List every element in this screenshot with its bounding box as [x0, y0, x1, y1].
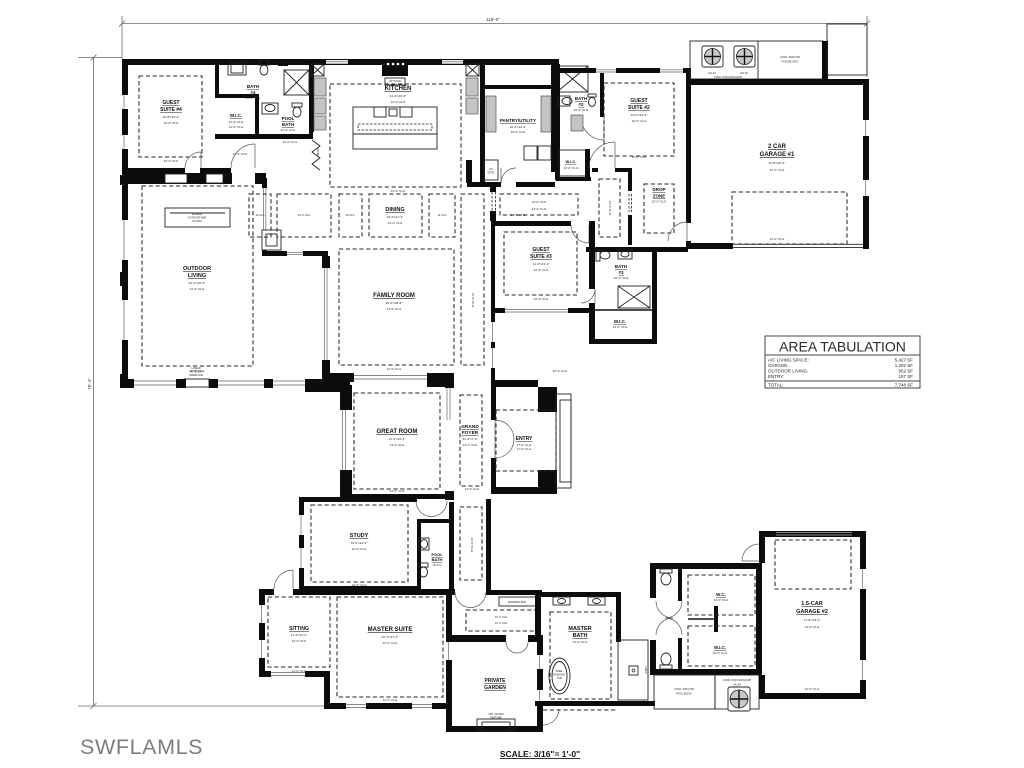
svg-text:7,748 SF: 7,748 SF	[895, 383, 914, 388]
svg-text:2 CAR: 2 CAR	[768, 144, 787, 150]
svg-text:CONC. PAD FOR: CONC. PAD FOR	[674, 688, 694, 691]
svg-text:24'-0"x11'-4": 24'-0"x11'-4"	[387, 215, 404, 219]
svg-text:21'-0"x16'-8": 21'-0"x16'-8"	[390, 94, 407, 98]
svg-text:POOL: POOL	[282, 116, 295, 121]
svg-text:14'-0"x13'-4": 14'-0"x13'-4"	[533, 262, 550, 266]
svg-text:12'-0" CLG: 12'-0" CLG	[292, 669, 307, 673]
svg-text:CONC. PAD FOR EQUIP: CONC. PAD FOR EQUIP	[714, 76, 742, 79]
svg-text:10'-0" CLG: 10'-0" CLG	[534, 297, 549, 301]
svg-text:GARDEN: GARDEN	[484, 685, 506, 691]
svg-text:14'-0" CLG: 14'-0" CLG	[390, 443, 405, 447]
svg-text:32'-0" CLG: 32'-0" CLG	[190, 369, 205, 373]
svg-text:10'-4"x14'-4": 10'-4"x14'-4"	[510, 125, 527, 129]
svg-text:LINEN: LINEN	[644, 666, 647, 674]
svg-text:10'-0" CLG: 10'-0" CLG	[614, 276, 629, 280]
svg-text:A/C #1: A/C #1	[708, 72, 716, 75]
svg-text:12'-0" CLG: 12'-0" CLG	[164, 121, 179, 125]
svg-text:POOL EQUIP.: POOL EQUIP.	[676, 693, 692, 696]
svg-text:21'-4"x7'-0": 21'-4"x7'-0"	[462, 437, 477, 441]
svg-text:A/C LIVING SPACE:: A/C LIVING SPACE:	[768, 358, 809, 363]
svg-text:12' CLG: 12' CLG	[345, 214, 354, 217]
svg-text:952 SF: 952 SF	[898, 369, 913, 374]
svg-text:1.5-CAR: 1.5-CAR	[801, 601, 822, 607]
svg-text:12'-0" CLG: 12'-0" CLG	[246, 96, 261, 100]
svg-text:12'-0" CLG: 12'-0" CLG	[352, 583, 367, 587]
svg-text:12'-0" CLG: 12'-0" CLG	[573, 701, 588, 705]
svg-text:167 SF: 167 SF	[898, 374, 913, 379]
svg-text:W/ SINK: W/ SINK	[192, 220, 202, 223]
svg-text:TOTAL:: TOTAL:	[768, 383, 783, 388]
svg-text:FIREPLACE: FIREPLACE	[189, 374, 203, 377]
svg-text:12'-0" CLG: 12'-0" CLG	[190, 287, 205, 291]
svg-text:#4: #4	[250, 90, 256, 95]
svg-text:12' CLG: 12' CLG	[437, 214, 446, 217]
svg-text:FOYER: FOYER	[316, 148, 319, 157]
svg-text:10'-0" CLG: 10'-0" CLG	[613, 325, 628, 329]
svg-text:10'-0" CLG: 10'-0" CLG	[632, 155, 647, 159]
svg-text:12'-0" CLG: 12'-0" CLG	[390, 489, 405, 493]
svg-text:BATH: BATH	[247, 84, 259, 89]
svg-text:ENTRY:: ENTRY:	[768, 374, 784, 379]
svg-text:76'-4": 76'-4"	[87, 378, 92, 390]
svg-text:14'-0" CLG: 14'-0" CLG	[463, 443, 478, 447]
svg-text:32'-0" CLG: 32'-0" CLG	[164, 159, 179, 163]
svg-text:BATH: BATH	[282, 122, 294, 127]
svg-text:12'-0" CLG: 12'-0" CLG	[608, 201, 612, 216]
svg-text:12'-0" CLG: 12'-0" CLG	[233, 152, 248, 156]
svg-text:BATH: BATH	[432, 557, 443, 562]
svg-text:SITTING: SITTING	[289, 626, 309, 632]
svg-text:12'-0" CLG: 12'-0" CLG	[471, 293, 475, 308]
svg-text:GARAGE #1: GARAGE #1	[760, 152, 795, 158]
svg-text:SUITE #2: SUITE #2	[628, 105, 650, 111]
svg-text:#2: #2	[578, 102, 584, 107]
svg-text:W.I.C.: W.I.C.	[566, 159, 577, 164]
svg-text:10'-0" CLG: 10'-0" CLG	[511, 130, 526, 134]
svg-text:12'-0" CLG: 12'-0" CLG	[229, 125, 244, 129]
svg-text:GREAT ROOM: GREAT ROOM	[377, 429, 418, 435]
svg-text:14'-0"x14'-4": 14'-0"x14'-4"	[631, 113, 648, 117]
svg-text:12'-0" CLG: 12'-0" CLG	[383, 698, 398, 702]
svg-text:W.C.: W.C.	[716, 592, 726, 597]
svg-text:12'-0" CLG: 12'-0" CLG	[805, 625, 820, 629]
svg-text:LIVING: LIVING	[188, 273, 206, 279]
svg-text:13'-0" CLG: 13'-0" CLG	[388, 221, 403, 225]
svg-text:17'-8"x23'-4": 17'-8"x23'-4"	[804, 618, 821, 622]
svg-text:17'-0" CLG: 17'-0" CLG	[517, 447, 532, 451]
svg-text:DINING: DINING	[385, 207, 404, 213]
svg-text:#3: #3	[618, 270, 624, 275]
svg-text:W.I.C.: W.I.C.	[230, 113, 242, 118]
svg-text:12'-0" CLG: 12'-0" CLG	[283, 140, 298, 144]
svg-text:SWFLAMLS: SWFLAMLS	[80, 735, 203, 759]
svg-text:10'-0" CLG: 10'-0" CLG	[564, 166, 579, 170]
svg-text:11'-4"x11'-4": 11'-4"x11'-4"	[291, 633, 307, 637]
svg-text:16'-0"x14'-0": 16'-0"x14'-0"	[351, 541, 368, 545]
svg-text:34'-4"x32'-4": 34'-4"x32'-4"	[189, 281, 206, 285]
svg-text:KITCHEN: KITCHEN	[385, 86, 412, 92]
svg-text:SUITE #3: SUITE #3	[530, 254, 552, 260]
svg-text:GUEST: GUEST	[630, 98, 647, 104]
svg-text:14'-0" CLG: 14'-0" CLG	[532, 207, 547, 211]
svg-text:BATH: BATH	[573, 633, 588, 639]
svg-text:SCALE: 3/16"= 1'-0": SCALE: 3/16"= 1'-0"	[500, 749, 580, 759]
svg-text:DROP: DROP	[652, 187, 665, 192]
svg-text:36" HOOD: 36" HOOD	[389, 80, 401, 83]
svg-text:10'-0" CLG: 10'-0" CLG	[574, 108, 589, 112]
svg-text:1,202 SF: 1,202 SF	[895, 363, 914, 368]
svg-text:12'-0" CLG: 12'-0" CLG	[805, 687, 820, 691]
svg-text:FOYER: FOYER	[462, 430, 479, 436]
svg-text:MASTER: MASTER	[568, 626, 591, 632]
svg-text:13'-0" CLG: 13'-0" CLG	[387, 307, 402, 311]
svg-text:AREA TABULATION: AREA TABULATION	[779, 339, 906, 355]
svg-text:A/C #2: A/C #2	[740, 72, 748, 75]
svg-text:OUTDOOR: OUTDOOR	[183, 266, 211, 272]
svg-text:20'-4"x18'-8": 20'-4"x18'-8"	[386, 301, 403, 305]
svg-text:GUEST: GUEST	[532, 247, 549, 253]
svg-text:14'-0" CLG: 14'-0" CLG	[511, 213, 526, 217]
svg-text:MASTER SUITE: MASTER SUITE	[368, 627, 413, 633]
svg-text:12'-0" CLG: 12'-0" CLG	[298, 214, 310, 217]
svg-text:5,427 SF: 5,427 SF	[895, 358, 914, 363]
svg-text:21'-4"x21'-4": 21'-4"x21'-4"	[389, 437, 406, 441]
svg-text:10'-0" CLG: 10'-0" CLG	[632, 119, 647, 123]
svg-text:12'-0" CLG: 12'-0" CLG	[229, 120, 244, 124]
svg-text:PRIVATE: PRIVATE	[485, 678, 507, 684]
svg-text:STUDY: STUDY	[350, 533, 369, 539]
svg-text:10'-0" CLG: 10'-0" CLG	[495, 622, 507, 625]
svg-text:12'-0" CLG: 12'-0" CLG	[383, 641, 398, 645]
svg-text:W.I.C.: W.I.C.	[614, 319, 626, 324]
svg-text:FAMILY ROOM: FAMILY ROOM	[373, 293, 415, 299]
svg-text:20'-4"x17'-4": 20'-4"x17'-4"	[382, 635, 399, 639]
svg-text:12'-0" CLG: 12'-0" CLG	[495, 616, 507, 619]
svg-text:CONC. PAD FOR: CONC. PAD FOR	[780, 56, 800, 59]
svg-text:MORNING BAR: MORNING BAR	[508, 601, 526, 604]
svg-text:PANTRY/UTILITY: PANTRY/UTILITY	[500, 118, 536, 123]
svg-text:10'-0" CLG: 10'-0" CLG	[714, 598, 729, 602]
svg-text:10'-0" CLG: 10'-0" CLG	[713, 651, 728, 655]
svg-text:A/C #3: A/C #3	[733, 684, 741, 687]
svg-text:12'-0" CLG: 12'-0" CLG	[470, 538, 474, 553]
svg-text:FUTURE GEN.: FUTURE GEN.	[782, 61, 799, 64]
svg-text:12'-0" CLG: 12'-0" CLG	[391, 189, 406, 193]
svg-text:W.I.C.: W.I.C.	[714, 645, 726, 650]
svg-text:GUEST: GUEST	[162, 100, 179, 106]
svg-text:GARAGE #2: GARAGE #2	[796, 609, 828, 615]
svg-text:10' CLG: 10' CLG	[432, 564, 441, 567]
svg-text:12' CLG: 12' CLG	[255, 214, 264, 217]
svg-text:16'-8"x14'-4": 16'-8"x14'-4"	[163, 115, 180, 119]
svg-text:TUB: TUB	[557, 677, 562, 680]
svg-text:12'-0" CLG: 12'-0" CLG	[532, 200, 547, 204]
svg-text:12'-0" CLG: 12'-0" CLG	[770, 237, 785, 241]
svg-text:12'-0" CLG: 12'-0" CLG	[292, 639, 307, 643]
svg-text:OUTDOOR LIVING:: OUTDOOR LIVING:	[768, 369, 808, 374]
svg-text:ZONE: ZONE	[653, 194, 666, 199]
svg-text:CONC. PAD FOR EQUIP: CONC. PAD FOR EQUIP	[723, 679, 751, 682]
svg-text:12'-0" CLG: 12'-0" CLG	[387, 367, 402, 371]
svg-text:24'-8"x23'-4": 24'-8"x23'-4"	[769, 161, 786, 165]
svg-text:12'-0" CLG: 12'-0" CLG	[770, 168, 785, 172]
svg-text:GRAND: GRAND	[461, 424, 479, 430]
svg-text:10'-0" CLG: 10'-0" CLG	[534, 268, 549, 272]
svg-text:12'-0" CLG: 12'-0" CLG	[573, 640, 588, 644]
svg-text:ENTRY: ENTRY	[516, 436, 533, 442]
svg-text:12'-0" CLG: 12'-0" CLG	[553, 369, 568, 373]
svg-text:10'-0" CLG: 10'-0" CLG	[652, 200, 667, 204]
svg-text:BATH: BATH	[615, 264, 627, 269]
svg-text:118'-0": 118'-0"	[486, 17, 500, 22]
svg-text:12'-0" CLG: 12'-0" CLG	[352, 547, 367, 551]
svg-text:GARAGE:: GARAGE:	[768, 363, 789, 368]
svg-text:BATH: BATH	[575, 96, 587, 101]
svg-text:SUITE #4: SUITE #4	[160, 107, 182, 113]
svg-text:STOR.: STOR.	[487, 172, 495, 175]
svg-text:12'-0" CLG: 12'-0" CLG	[391, 100, 406, 104]
svg-text:14'-0" CLG: 14'-0" CLG	[465, 487, 480, 491]
svg-text:12'-0" CLG: 12'-0" CLG	[281, 128, 296, 132]
